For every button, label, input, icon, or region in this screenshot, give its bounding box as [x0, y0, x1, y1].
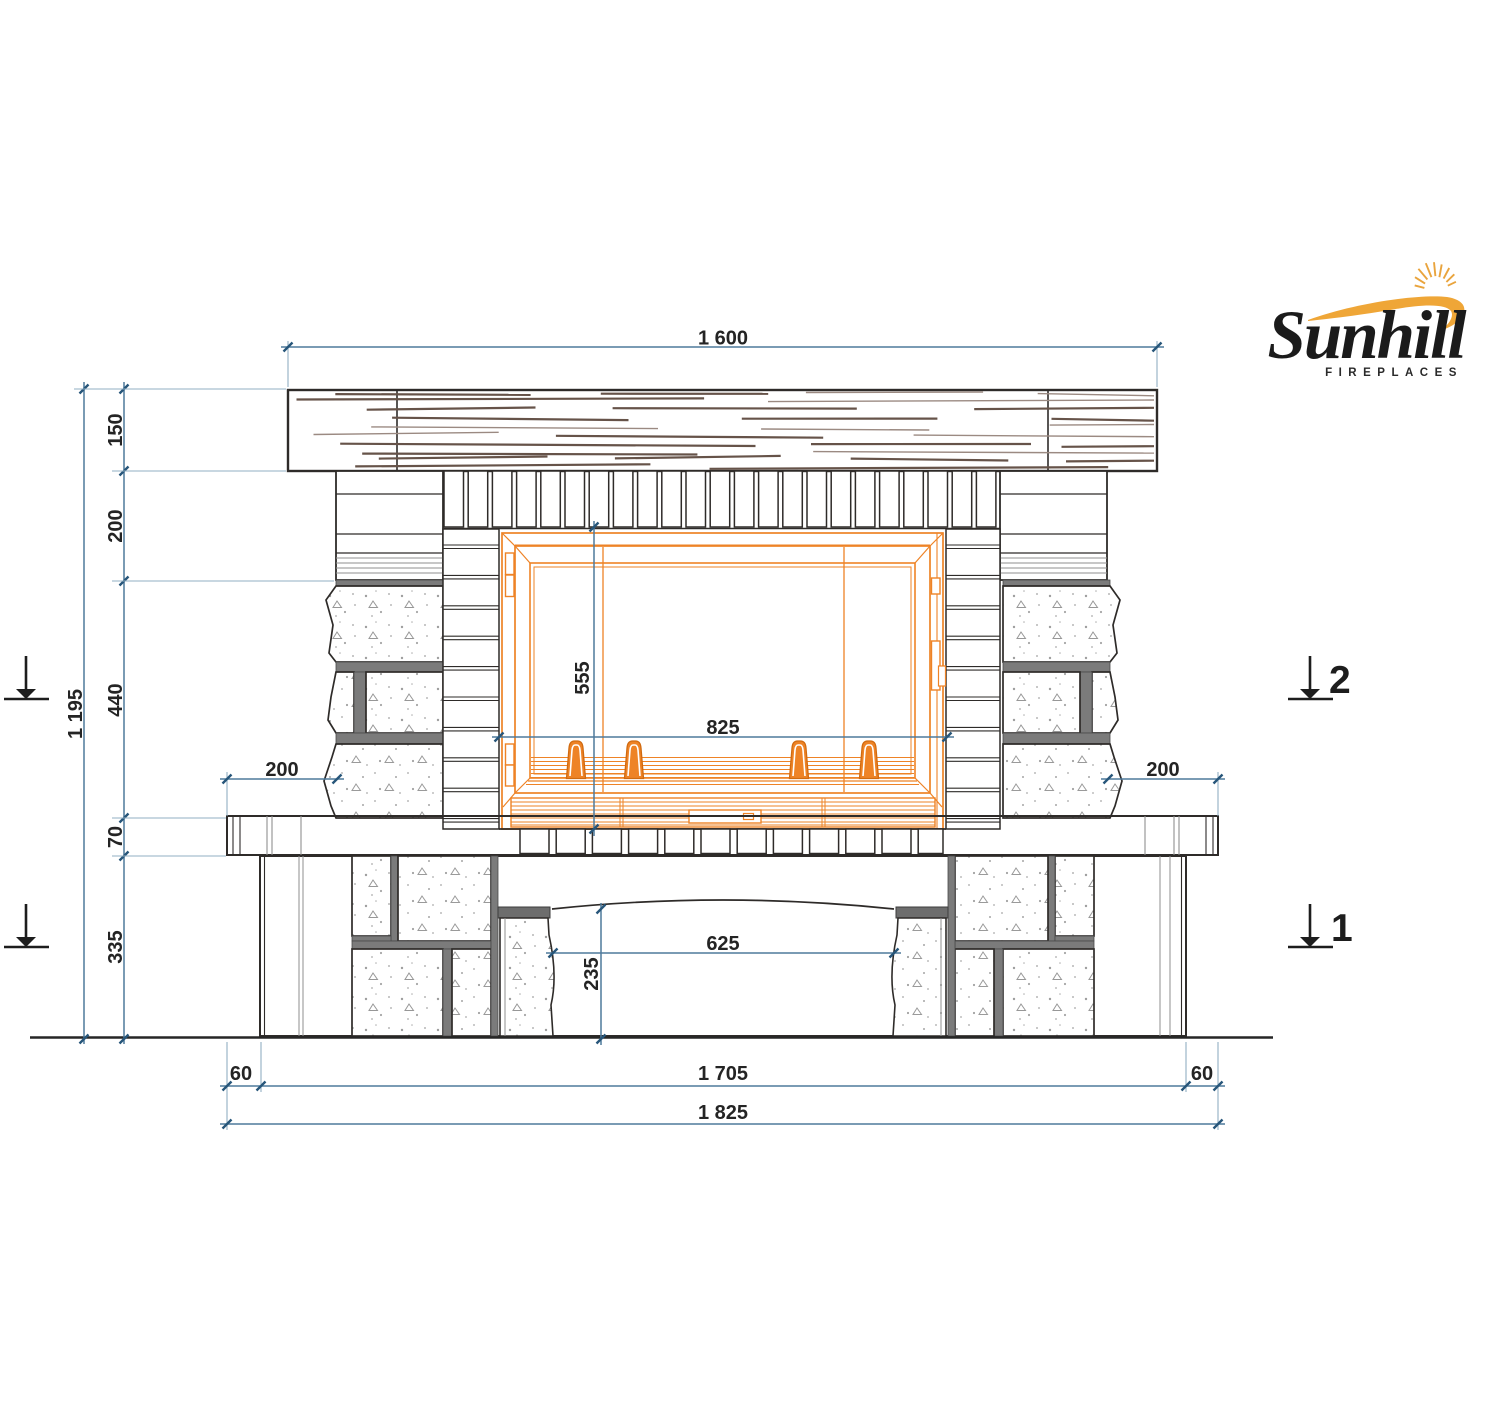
svg-text:60: 60 [1191, 1063, 1213, 1085]
svg-text:625: 625 [706, 933, 739, 955]
svg-text:1 600: 1 600 [698, 328, 748, 350]
svg-text:440: 440 [105, 683, 127, 716]
svg-text:Sunhill: Sunhill [1267, 297, 1467, 373]
svg-text:150: 150 [105, 413, 127, 446]
svg-text:60: 60 [230, 1063, 252, 1085]
svg-text:2: 2 [1329, 659, 1351, 702]
svg-text:FIREPLACES: FIREPLACES [1325, 367, 1463, 379]
svg-text:1 705: 1 705 [698, 1063, 748, 1085]
svg-text:1 825: 1 825 [698, 1102, 748, 1124]
svg-text:1 195: 1 195 [65, 689, 87, 739]
svg-text:235: 235 [581, 957, 603, 990]
svg-text:200: 200 [265, 759, 298, 781]
svg-text:555: 555 [572, 661, 594, 694]
svg-text:1: 1 [1331, 907, 1353, 950]
svg-text:200: 200 [105, 509, 127, 542]
svg-text:200: 200 [1146, 759, 1179, 781]
svg-text:70: 70 [105, 826, 127, 848]
svg-text:825: 825 [706, 717, 739, 739]
svg-text:335: 335 [105, 930, 127, 963]
